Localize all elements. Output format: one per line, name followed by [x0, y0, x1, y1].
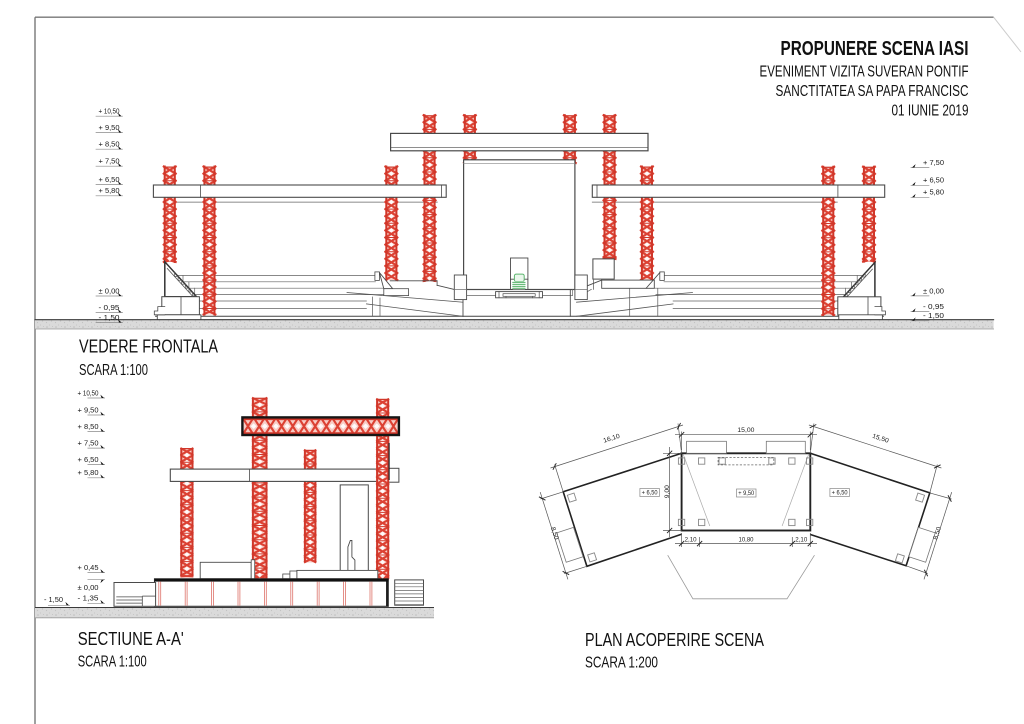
- svg-text:± 0,00: ± 0,00: [923, 286, 944, 295]
- svg-text:+ 9,50: + 9,50: [99, 123, 120, 132]
- svg-text:+ 6,50: + 6,50: [923, 176, 944, 185]
- svg-text:± 0,00: ± 0,00: [99, 286, 120, 295]
- svg-text:8,50: 8,50: [932, 526, 943, 541]
- svg-text:10,80: 10,80: [739, 537, 755, 544]
- svg-text:- 1,50: - 1,50: [44, 595, 63, 604]
- svg-text:+ 7,50: + 7,50: [99, 157, 120, 166]
- svg-text:PLAN ACOPERIRE SCENA: PLAN ACOPERIRE SCENA: [585, 630, 764, 650]
- svg-text:- 0,95: - 0,95: [99, 303, 120, 312]
- svg-text:+ 8,50: + 8,50: [99, 140, 120, 149]
- svg-text:16,10: 16,10: [602, 433, 621, 445]
- svg-text:- 1,50: - 1,50: [923, 311, 944, 320]
- svg-text:15,00: 15,00: [737, 427, 754, 434]
- svg-text:SCARA 1:100: SCARA 1:100: [79, 362, 148, 379]
- svg-text:15,50: 15,50: [871, 433, 890, 445]
- svg-text:+ 9,50: + 9,50: [738, 490, 754, 497]
- svg-text:+ 5,80: + 5,80: [923, 188, 944, 197]
- svg-text:+ 7,50: + 7,50: [923, 158, 944, 167]
- svg-text:+ 8,50: + 8,50: [78, 422, 99, 431]
- svg-text:SCARA 1:100: SCARA 1:100: [78, 654, 147, 671]
- svg-text:- 0,95: - 0,95: [923, 302, 944, 311]
- svg-text:+ 6,50: + 6,50: [99, 175, 120, 184]
- svg-text:- 1,35: - 1,35: [78, 594, 99, 603]
- svg-text:+ 7,50: + 7,50: [78, 439, 99, 448]
- svg-text:+ 5,80: + 5,80: [78, 468, 99, 477]
- svg-text:+ 10,50: + 10,50: [78, 388, 99, 397]
- svg-text:+ 6,50: + 6,50: [642, 490, 658, 497]
- svg-text:- 1,50: - 1,50: [99, 313, 120, 322]
- svg-text:± 0,00: ± 0,00: [78, 583, 99, 592]
- svg-text:+ 5,80: + 5,80: [99, 186, 120, 195]
- svg-text:SCARA 1:200: SCARA 1:200: [585, 655, 658, 672]
- svg-text:+ 9,50: + 9,50: [78, 405, 99, 414]
- svg-text:SECTIUNE A-A': SECTIUNE A-A': [78, 629, 184, 649]
- svg-text:01 IUNIE 2019: 01 IUNIE 2019: [892, 103, 969, 120]
- svg-text:8,50: 8,50: [549, 526, 560, 541]
- svg-text:2,10: 2,10: [795, 537, 808, 544]
- svg-text:VEDERE FRONTALA: VEDERE FRONTALA: [79, 337, 218, 357]
- svg-text:PROPUNERE SCENA IASI: PROPUNERE SCENA IASI: [781, 38, 969, 60]
- svg-text:2,10: 2,10: [685, 537, 698, 544]
- svg-text:+ 6,50: + 6,50: [78, 455, 99, 464]
- svg-text:+ 6,50: + 6,50: [832, 490, 848, 497]
- svg-text:9,00: 9,00: [664, 485, 671, 498]
- svg-text:SANCTITATEA SA PAPA FRANCISC: SANCTITATEA SA PAPA FRANCISC: [776, 83, 969, 100]
- svg-text:+ 0,45: + 0,45: [78, 563, 99, 572]
- svg-text:EVENIMENT VIZITA SUVERAN PONTI: EVENIMENT VIZITA SUVERAN PONTIF: [760, 64, 969, 81]
- svg-text:+ 10,50: + 10,50: [99, 107, 120, 116]
